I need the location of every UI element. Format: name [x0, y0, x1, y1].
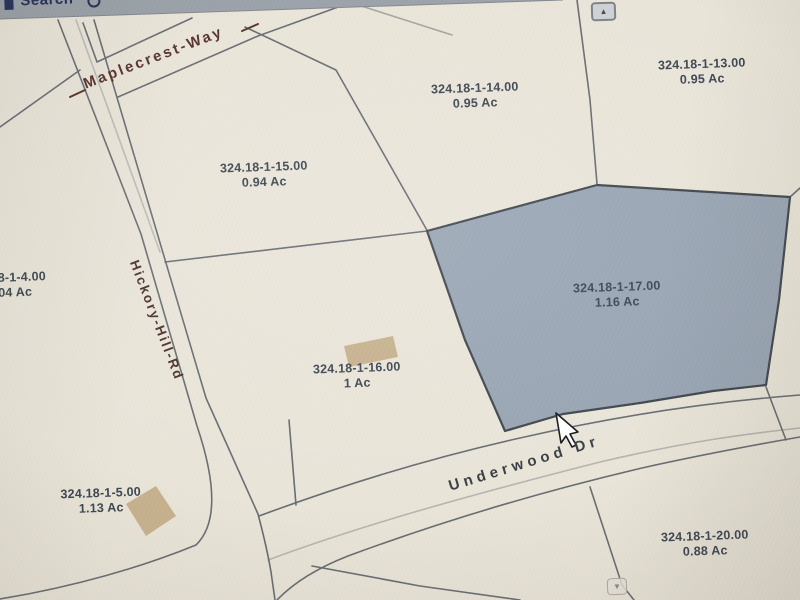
parcel-label-16: 324.18-1-16.00 1 Ac [313, 359, 402, 392]
parcel-label-13: 324.18-1-13.00 0.95 Ac [658, 55, 747, 88]
parcel-acreage: 04 Ac [0, 284, 47, 301]
parcel-acreage: 1.13 Ac [61, 500, 142, 518]
parcel-label-15: 324.18-1-15.00 0.94 Ac [220, 158, 309, 191]
parcel-id: 324.18-1-20.00 [661, 527, 749, 545]
parcel-acreage: 0.94 Ac [220, 173, 308, 191]
parcel-id: 324.18-1-17.00 [573, 278, 661, 296]
pan-down-button[interactable]: ▼ [607, 578, 628, 596]
parcel-map-screenshot: { "toolbar": { "search_label": "Search" … [0, 0, 800, 600]
parcel-acreage: 0.88 Ac [661, 542, 749, 560]
parcel-id: 324.18-1-16.00 [313, 359, 401, 377]
parcel-id: 324.18-1-13.00 [658, 55, 746, 73]
pan-up-button[interactable]: ▲ [591, 2, 617, 22]
parcel-id: 8-1-4.00 [0, 269, 46, 286]
parcel-label-14: 324.18-1-14.00 0.95 Ac [431, 79, 520, 112]
parcel-label-17-selected: 324.18-1-17.00 1.16 Ac [573, 278, 662, 311]
clipped-toolbar-icon [4, 0, 13, 10]
chevron-up-icon: ▲ [599, 7, 607, 15]
help-icon[interactable] [87, 0, 100, 8]
parcel-id: 324.18-1-5.00 [60, 485, 141, 503]
parcel-acreage: 1 Ac [313, 374, 401, 392]
screen-photo: Search ▲ ▼ Maplecrest-Way Hickory-Hill-R… [0, 0, 800, 600]
parcel-acreage: 1.16 Ac [573, 293, 661, 311]
chevron-down-icon: ▼ [613, 582, 621, 590]
parcel-acreage: 0.95 Ac [431, 94, 519, 112]
parcel-label-4: 8-1-4.00 04 Ac [0, 269, 47, 301]
parcel-id: 324.18-1-15.00 [220, 158, 308, 176]
parcel-id: 324.18-1-14.00 [431, 79, 519, 97]
parcel-label-5: 324.18-1-5.00 1.13 Ac [60, 485, 141, 518]
parcel-acreage: 0.95 Ac [658, 70, 746, 88]
search-menu-label[interactable]: Search [20, 0, 74, 9]
parcel-label-20: 324.18-1-20.00 0.88 Ac [661, 527, 750, 560]
